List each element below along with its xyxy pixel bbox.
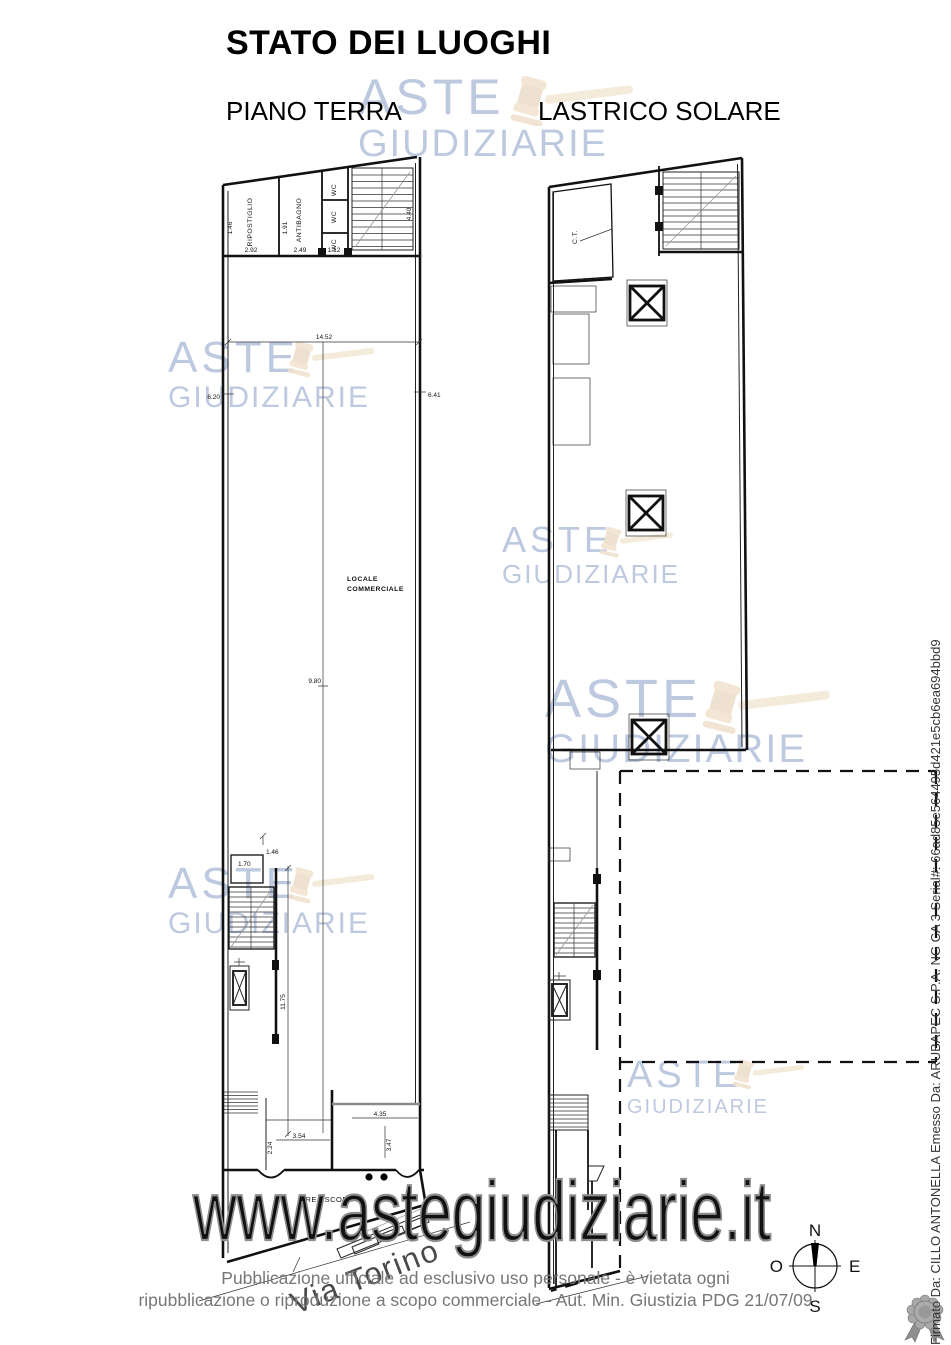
dim-label: 2.49: [294, 247, 307, 254]
dim-label: 2.24: [267, 1141, 274, 1154]
floor-plan-piano-terra: RIPOSTIGLIO ANTIBAGNO WC WC WC 2.92 2.49…: [199, 157, 470, 1301]
skylight: [626, 490, 666, 536]
www-watermark: www.astegiudiziarie.it: [0, 1170, 951, 1265]
dim-label: 14.52: [316, 334, 333, 341]
page-title: STATO DEI LUOGHI: [226, 24, 551, 63]
dim-label: 6.20: [207, 394, 220, 401]
dim-label: 3.47: [386, 1138, 393, 1151]
floor-plan-lastrico-solare: C.T.: [536, 158, 936, 1304]
footer-disclaimer: Pubblicazione ufficiale ad esclusivo uso…: [0, 1268, 951, 1312]
dim-label: 1.12: [328, 247, 341, 254]
floor-plan-drawing: RIPOSTIGLIO ANTIBAGNO WC WC WC 2.92 2.49…: [0, 0, 951, 1345]
dim-label: 2.92: [245, 247, 258, 254]
dim-label: 1.91: [282, 221, 289, 234]
room-label-antibagno: ANTIBAGNO: [296, 198, 303, 243]
plan-label-piano-terra: PIANO TERRA: [226, 96, 402, 127]
www-watermark-text: www.astegiudiziarie.it: [192, 1170, 771, 1258]
dim-label: 3.54: [293, 1133, 306, 1140]
room-label-ct: C.T.: [572, 230, 579, 244]
room-label-locale-2: COMMERCIALE: [347, 586, 404, 593]
room-label-locale-1: LOCALE: [347, 576, 378, 583]
footer-line1: Pubblicazione ufficiale ad esclusivo uso…: [0, 1268, 951, 1290]
dim-label: 1.70: [238, 861, 251, 868]
dim-label: 11.75: [280, 994, 287, 1010]
room-label-wc2: WC: [331, 211, 338, 223]
document-page: ASTE GIUDIZIARIE ASTE GIUDIZIARIE ASTE G…: [0, 0, 951, 1345]
dim-label: 9.80: [308, 678, 321, 685]
room-label-wc1: WC: [331, 184, 338, 196]
room-label-ripostiglio: RIPOSTIGLIO: [247, 198, 254, 247]
plan-label-lastrico-solare: LASTRICO SOLARE: [538, 96, 781, 127]
dim-label: 1.46: [227, 221, 234, 234]
footer-line2: ripubblicazione o riproduzione a scopo c…: [0, 1290, 951, 1312]
dim-label: 4.35: [374, 1111, 387, 1118]
skylight: [629, 714, 669, 760]
dim-label: 6.41: [428, 392, 441, 399]
skylight: [627, 280, 667, 326]
digital-signature-text: Firmato Da: CILLO ANTONELLA Emesso Da: A…: [928, 639, 943, 1345]
dim-label: 4.40: [406, 207, 413, 220]
dim-label: 1.46: [266, 849, 279, 856]
